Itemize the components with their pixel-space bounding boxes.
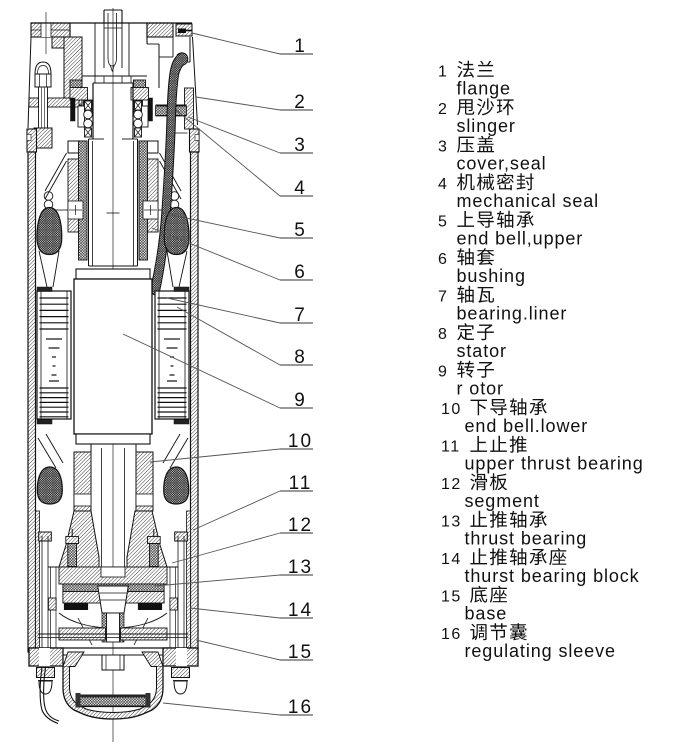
svg-text:1: 1 xyxy=(438,63,448,80)
svg-text:bearing.liner: bearing.liner xyxy=(457,304,568,324)
svg-text:2: 2 xyxy=(438,101,448,118)
svg-text:8: 8 xyxy=(438,326,448,343)
svg-text:11: 11 xyxy=(441,438,461,455)
svg-text:5: 5 xyxy=(438,213,448,230)
svg-text:slinger: slinger xyxy=(457,116,516,136)
svg-text:mechanical seal: mechanical seal xyxy=(457,191,600,211)
svg-text:9: 9 xyxy=(438,363,448,380)
svg-text:3: 3 xyxy=(438,138,448,155)
svg-text:6: 6 xyxy=(438,251,448,268)
svg-text:flange: flange xyxy=(457,79,511,99)
svg-text:7: 7 xyxy=(438,288,448,305)
svg-text:15: 15 xyxy=(441,588,462,605)
svg-text:end bell,upper: end bell,upper xyxy=(457,229,584,249)
svg-text:regulating sleeve: regulating sleeve xyxy=(465,641,616,661)
svg-text:thurst bearing block: thurst bearing block xyxy=(465,566,640,586)
svg-text:12: 12 xyxy=(441,476,462,493)
svg-text:thrust bearing: thrust bearing xyxy=(465,529,588,549)
svg-text:10: 10 xyxy=(441,401,462,418)
svg-text:4: 4 xyxy=(438,176,448,193)
svg-text:stator: stator xyxy=(457,341,507,361)
svg-text:13: 13 xyxy=(441,513,462,530)
svg-text:end bell.lower: end bell.lower xyxy=(465,416,589,436)
svg-text:r otor: r otor xyxy=(457,379,504,399)
svg-text:bushing: bushing xyxy=(457,266,526,286)
svg-text:16: 16 xyxy=(441,626,462,643)
svg-text:segment: segment xyxy=(465,491,540,511)
svg-text:14: 14 xyxy=(441,551,462,568)
svg-text:base: base xyxy=(465,604,508,624)
svg-text:upper thrust bearing: upper thrust bearing xyxy=(465,454,644,474)
svg-text:cover,seal: cover,seal xyxy=(457,154,547,174)
